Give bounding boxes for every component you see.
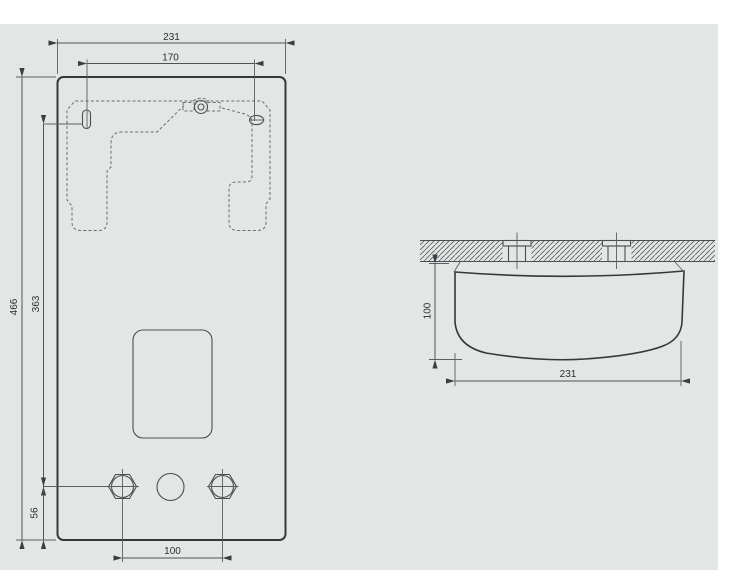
dim-label-depth: 100 bbox=[423, 302, 434, 319]
dim-label-overall-height: 466 bbox=[9, 298, 20, 315]
wall-hatch-1 bbox=[420, 241, 503, 262]
dim-label-hole-spacing: 170 bbox=[162, 53, 179, 64]
technical-drawing: 231 170 466 363 56 100 bbox=[0, 0, 732, 588]
dim-label-connections-to-bottom: 56 bbox=[30, 507, 41, 519]
drawing-page: 231 170 466 363 56 100 bbox=[0, 0, 732, 588]
dim-label-side-width: 231 bbox=[560, 369, 577, 380]
drawing-panel bbox=[0, 24, 718, 570]
wall-section bbox=[420, 241, 715, 262]
wall-hatch-2 bbox=[532, 241, 603, 262]
dim-label-mount-to-connections: 363 bbox=[31, 295, 42, 312]
dim-label-overall-width: 231 bbox=[163, 32, 180, 43]
dim-label-connection-spacing: 100 bbox=[164, 546, 181, 557]
wall-hatch-3 bbox=[632, 241, 716, 262]
